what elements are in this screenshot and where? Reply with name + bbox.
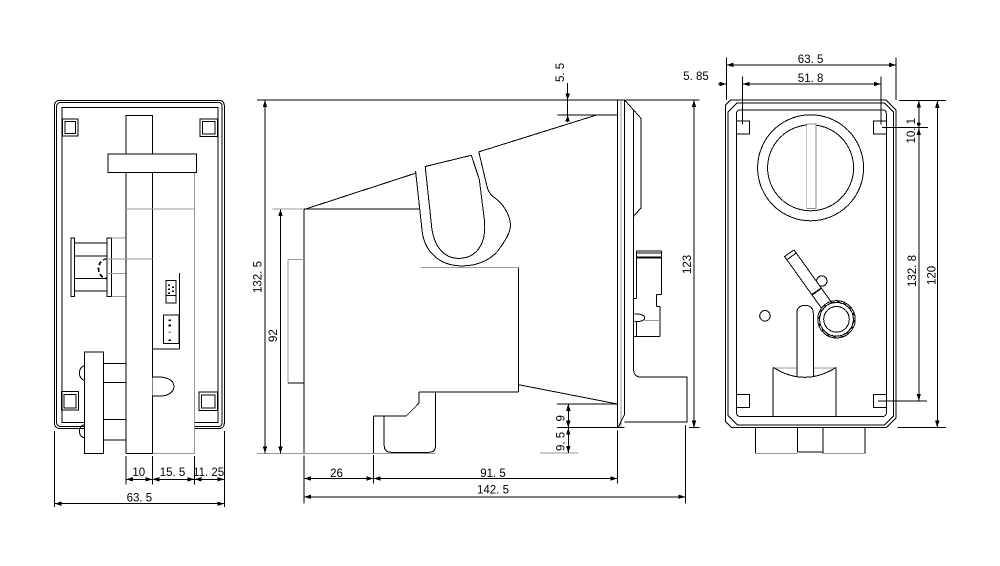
svg-text:9: 9 xyxy=(556,415,568,421)
svg-text:5. 5: 5. 5 xyxy=(555,63,567,82)
svg-text:132. 8: 132. 8 xyxy=(907,255,919,287)
svg-text:10: 10 xyxy=(132,467,145,479)
svg-text:5. 85: 5. 85 xyxy=(683,71,709,83)
svg-text:142. 5: 142. 5 xyxy=(477,484,509,496)
svg-text:132. 5: 132. 5 xyxy=(253,261,265,293)
svg-text:91. 5: 91. 5 xyxy=(480,468,506,480)
svg-text:63. 5: 63. 5 xyxy=(798,54,824,66)
svg-text:123: 123 xyxy=(682,255,694,274)
svg-text:9. 5: 9. 5 xyxy=(556,432,568,451)
svg-text:11. 25: 11. 25 xyxy=(193,467,224,479)
svg-text:10. 1: 10. 1 xyxy=(906,118,918,144)
svg-text:120: 120 xyxy=(926,266,938,285)
svg-text:26: 26 xyxy=(330,468,343,480)
svg-text:92: 92 xyxy=(268,329,280,342)
svg-text:51. 8: 51. 8 xyxy=(798,73,824,85)
svg-text:63. 5: 63. 5 xyxy=(127,493,153,505)
svg-text:15. 5: 15. 5 xyxy=(160,467,186,479)
